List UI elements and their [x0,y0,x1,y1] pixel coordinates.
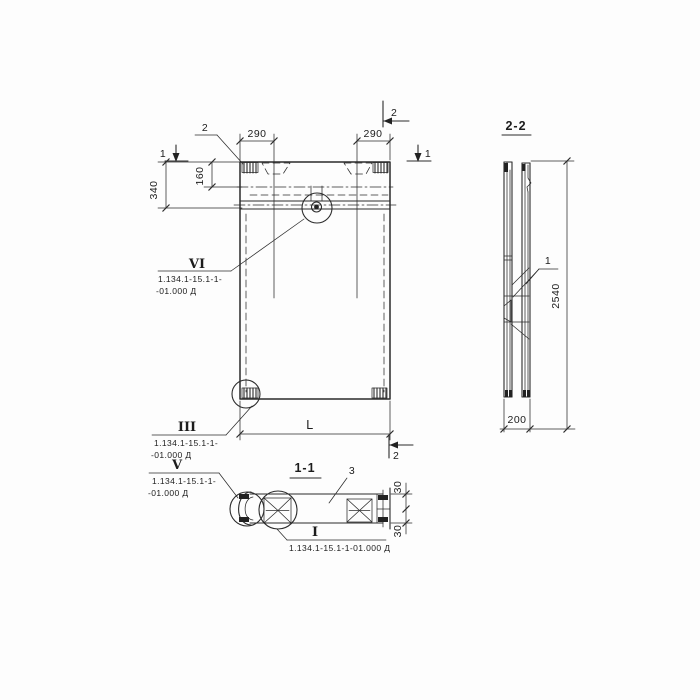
section-bar [239,488,390,529]
dim-160: 160 [194,166,206,185]
section-view-title: 1-1 [294,461,315,475]
channel-element-1 [264,498,291,523]
side-view: 2-2 [500,119,575,433]
channel-element-2 [347,499,372,522]
side-view-title: 2-2 [505,119,526,133]
item-3-leader: 3 [329,465,355,503]
item-1-label: 1 [545,255,551,267]
callout-i-numeral: I [312,525,318,540]
section-1-left-label: 1 [160,148,166,160]
dim-290-left: 290 [247,128,266,140]
dim-thickness-200: 200 [501,399,534,433]
dim-L: L [306,418,313,432]
callout-iii: III 1.134.1-15.1-1- -01.000 Д [151,406,252,460]
panel-outline [240,162,390,399]
section-1-right-label: 1 [425,148,431,160]
dim-30-top: 30 [392,481,404,494]
callout-i-doc1: 1.134.1-15.1-1-01.000 Д [289,543,390,553]
dim-200: 200 [507,414,526,426]
section-mark-2-top: 2 [383,101,409,127]
section-mark-1-left: 1 [160,145,188,162]
dim-recess-left: 290 [237,128,278,298]
callout-vi-numeral: VI [188,257,205,272]
callout-vi-doc1: 1.134.1-15.1-1- [158,274,222,284]
technical-drawing-page: 290 290 340 160 1 1 [0,0,700,700]
callout-vi: VI 1.134.1-15.1-1- -01.000 Д [156,219,304,296]
dim-340: 340 [148,180,160,199]
dim-length-L: L [237,401,394,440]
leader-2-label: 2 [202,122,208,134]
callout-vi-doc2: -01.000 Д [156,286,197,296]
embedded-plate-bottom-right [372,388,387,398]
dim-left-group: 340 160 [148,159,242,212]
embedded-plate-top-left [242,163,258,174]
section-view: 1-1 3 [148,458,412,553]
embedded-plate-top-right [373,163,388,174]
dim-290-right: 290 [363,128,382,140]
drawing-canvas: 290 290 340 160 1 1 [0,0,700,700]
recess-trapezoid-left [262,163,290,174]
lifting-loop [311,186,322,212]
dim-flanges: 30 30 [391,481,412,538]
embedded-plate-bottom-left [242,388,258,398]
callout-iii-numeral: III [178,420,196,435]
dim-2540: 2540 [550,283,562,308]
panel-inner-dashed-edges [246,214,384,392]
dim-30-bottom: 30 [392,525,404,538]
section-mark-2-bottom: 2 [389,435,413,462]
item-3-label: 3 [349,465,355,477]
section-2-top-label: 2 [391,107,397,119]
callout-v-doc2: -01.000 Д [148,488,189,498]
side-view-outline [504,162,531,397]
callout-v-doc1: 1.134.1-15.1-1- [152,476,216,486]
section-mark-1-right: 1 [407,145,431,162]
front-view: 290 290 340 160 1 1 [148,101,431,462]
recess-trapezoid-right [344,163,372,174]
section-2-bottom-label: 2 [393,450,399,462]
callout-v: V 1.134.1-15.1-1- -01.000 Д [148,458,238,498]
leader-mark-2-top-left: 2 [195,122,243,164]
callout-iii-doc1: 1.134.1-15.1-1- [154,438,218,448]
callout-v-numeral: V [171,458,183,473]
dim-recess-right: 290 [354,128,394,298]
callout-i: I 1.134.1-15.1-1-01.000 Д [277,525,390,553]
